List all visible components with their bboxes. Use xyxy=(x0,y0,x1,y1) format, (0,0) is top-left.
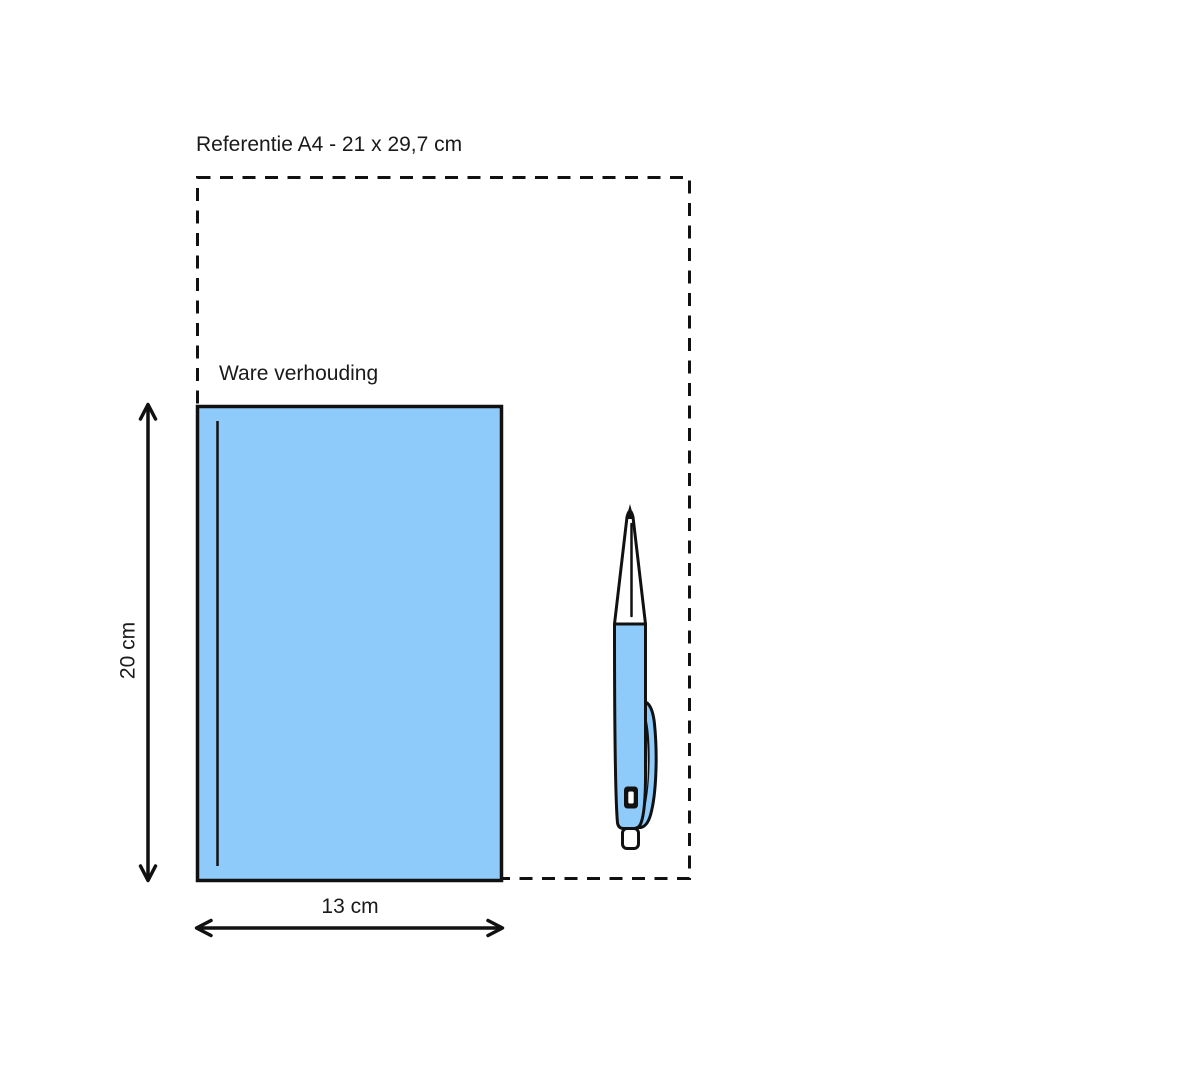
height-dimension-label: 20 cm xyxy=(117,621,140,681)
size-comparison-diagram: Referentie A4 - 21 x 29,7 cm Ware verhou… xyxy=(0,0,1200,1066)
product-rectangle xyxy=(198,407,502,881)
reference-size-label: Referentie A4 - 21 x 29,7 cm xyxy=(196,133,462,156)
width-dimension-label: 13 cm xyxy=(197,895,503,918)
pen-cone xyxy=(615,511,646,624)
pen-slot-inner xyxy=(628,792,633,804)
height-dimension-arrow xyxy=(141,405,156,881)
ballpoint-pen-icon xyxy=(615,504,657,849)
width-dimension-arrow xyxy=(197,921,503,936)
diagram-shapes xyxy=(0,0,1200,1066)
pen-push-button xyxy=(623,829,639,849)
true-proportion-label: Ware verhouding xyxy=(219,362,378,385)
pen-tip xyxy=(626,504,634,519)
